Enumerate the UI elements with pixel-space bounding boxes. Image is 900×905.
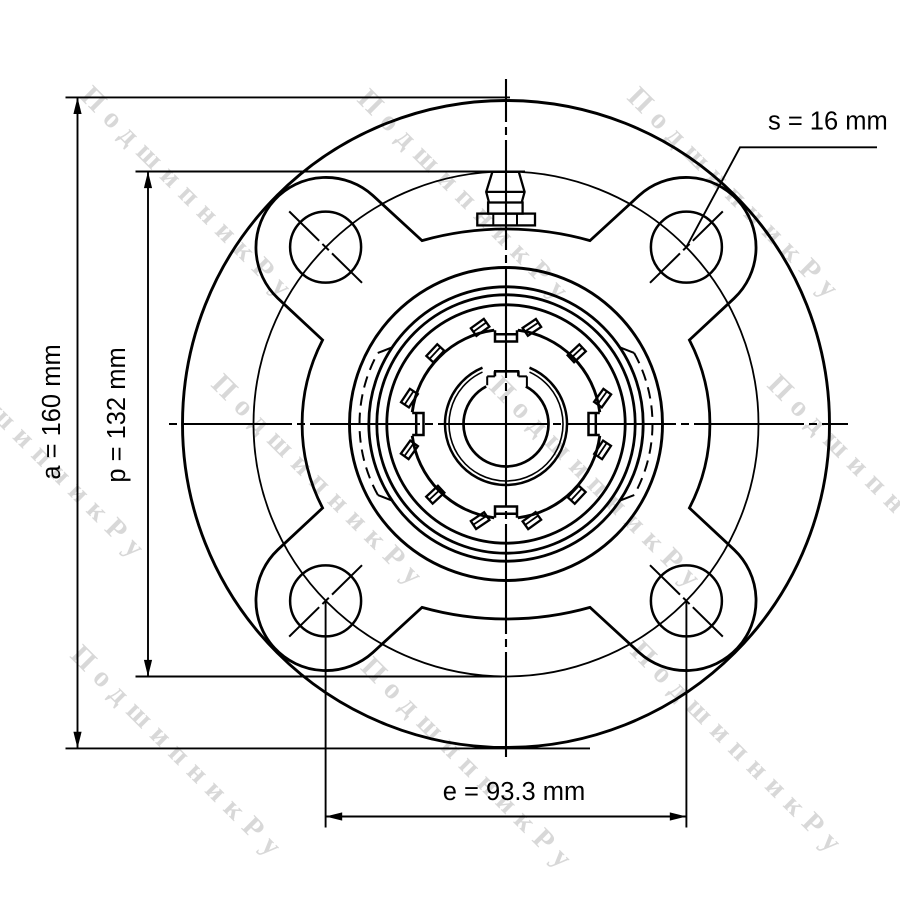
- svg-text:ПодшипникРу: ПодшипникРу: [355, 651, 585, 881]
- svg-text:ПодшипникРу: ПодшипникРу: [351, 83, 581, 313]
- svg-text:s = 16 mm: s = 16 mm: [768, 108, 888, 136]
- svg-text:ПодшипникРу: ПодшипникРу: [74, 80, 304, 310]
- svg-text:a = 160 mm: a = 160 mm: [38, 344, 66, 479]
- svg-text:ПодшипникРу: ПодшипникРу: [0, 340, 157, 570]
- svg-text:ПодшипникРу: ПодшипникРу: [761, 368, 900, 598]
- svg-text:ПодшипникРу: ПодшипникРу: [624, 635, 854, 865]
- svg-text:p = 132 mm: p = 132 mm: [103, 347, 131, 482]
- svg-text:e = 93.3 mm: e = 93.3 mm: [443, 778, 585, 806]
- svg-text:ПодшипникРу: ПодшипникРу: [64, 639, 294, 869]
